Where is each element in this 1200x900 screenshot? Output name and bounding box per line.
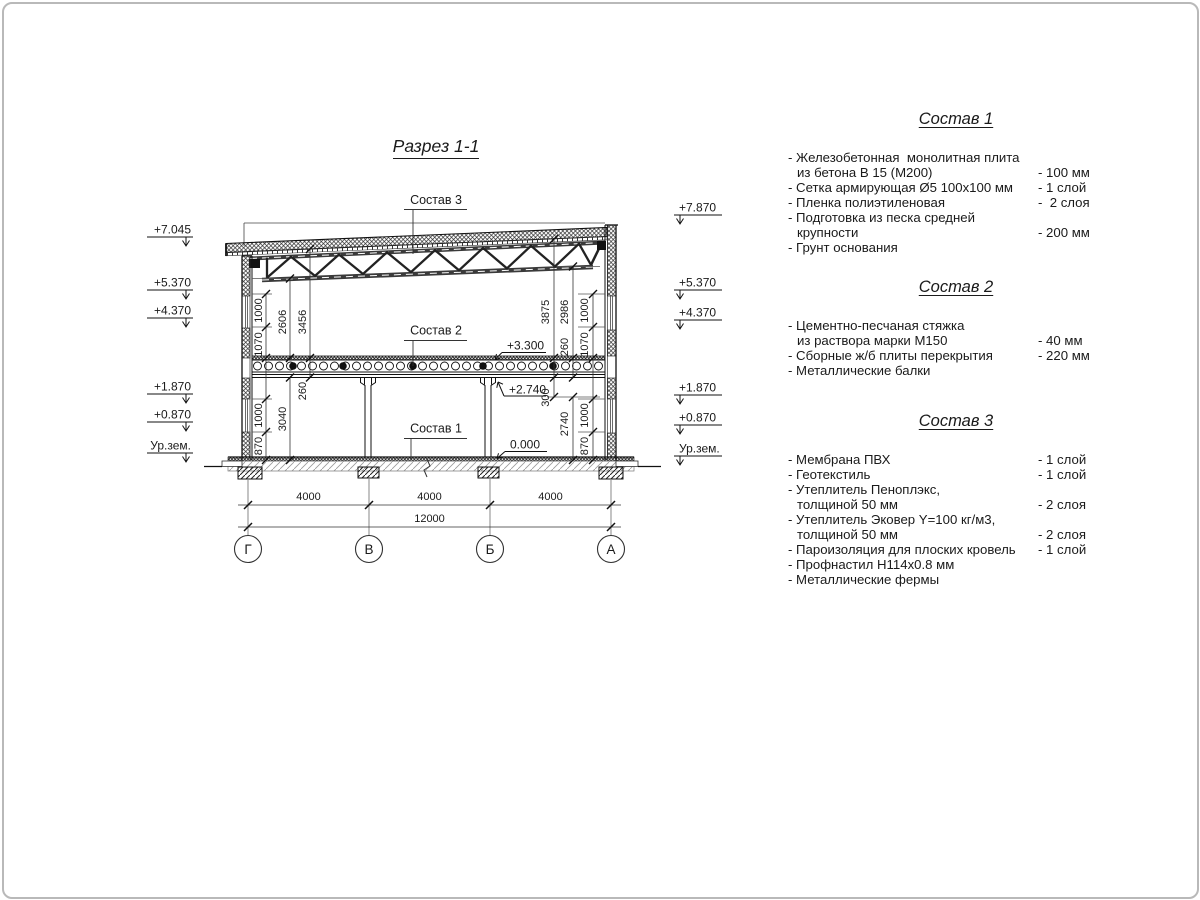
- composition-item: - Пароизоляция для плоских кровель - 1 с…: [788, 542, 1124, 557]
- elevation-mark: +0.870: [674, 411, 722, 435]
- dim-label: 2606: [277, 310, 289, 334]
- axis-bubbles: Г В Б А: [235, 536, 625, 563]
- bottom-dimensions: 4000 4000 4000 12000 Г В Б А: [235, 479, 625, 563]
- elevation-label: +1.870: [154, 380, 191, 394]
- composition-item-text: крупности: [788, 225, 1038, 240]
- elevation-mark: +7.045: [147, 223, 193, 247]
- composition-item-text: - Профнастил Н114х0.8 мм: [788, 557, 1038, 572]
- composition-item: - Пленка полиэтиленовая - 2 слоя: [788, 195, 1124, 210]
- composition-item: толщиной 50 мм - 2 слоя: [788, 497, 1124, 512]
- composition-block-3: Состав 3 - Мембрана ПВХ - 1 слой - Геоте…: [788, 412, 1124, 587]
- composition-item: из раствора марки М150 - 40 мм: [788, 333, 1124, 348]
- left-wall: [242, 256, 252, 461]
- callout-label: Состав 3: [410, 193, 462, 207]
- dim-label: 3456: [297, 310, 309, 334]
- dim-label: 4000: [538, 491, 562, 503]
- wall-masonry: [242, 256, 250, 296]
- elevation-label: +5.370: [154, 276, 191, 290]
- section-title: Разрез 1-1: [393, 136, 480, 156]
- dim-label: 1000: [253, 298, 265, 322]
- elevation-mark: +5.370: [147, 276, 193, 300]
- elevation-label: +5.370: [679, 276, 716, 290]
- composition-item: - Сетка армирующая Ø5 100х100 мм - 1 сло…: [788, 180, 1124, 195]
- elevation-mark: Ур.зем.: [147, 439, 193, 463]
- composition-item-value: - 100 мм: [1038, 165, 1090, 180]
- composition-item: - Подготовка из песка средней: [788, 210, 1124, 225]
- callout-label: Состав 2: [410, 324, 462, 338]
- dim-label: 1000: [579, 298, 591, 322]
- composition-item: - Профнастил Н114х0.8 мм: [788, 557, 1124, 572]
- composition-item-text: - Цементно-песчаная стяжка: [788, 318, 1038, 333]
- dim-label: 3875: [540, 300, 552, 324]
- elevation-marks-left: +7.045 +5.370 +4.370 +1.870 +0.870 Ур.зе…: [147, 223, 193, 463]
- composition-item: толщиной 50 мм - 2 слоя: [788, 527, 1124, 542]
- section-drawing: Разрез 1-1: [0, 0, 780, 620]
- composition-item: крупности - 200 мм: [788, 225, 1124, 240]
- composition-list: - Железобетонная монолитная плита из бет…: [788, 150, 1124, 255]
- composition-item-value: - 220 мм: [1038, 348, 1090, 363]
- column-axis-b: [481, 378, 496, 458]
- composition-item-text: из раствора марки М150: [788, 333, 1038, 348]
- drawing-title: Разрез 1-1: [393, 136, 480, 159]
- composition-item-value: - 1 слой: [1038, 542, 1086, 557]
- composition-item-text: - Подготовка из песка средней: [788, 210, 1038, 225]
- dim-label: 1000: [579, 403, 591, 427]
- level-mark-beam: +2.740: [497, 382, 547, 397]
- callout-sostav1: Состав 1: [404, 422, 467, 461]
- elevation-marks-right: +7.870 +5.370 +4.370 +1.870 +0.870 Ур.зе…: [674, 201, 722, 466]
- axis-label: Г: [244, 542, 252, 557]
- composition-title: Состав 3: [788, 412, 1124, 431]
- composition-item-text: толщиной 50 мм: [788, 497, 1038, 512]
- composition-item-text: - Пленка полиэтиленовая: [788, 195, 1038, 210]
- plinth-right: [616, 461, 638, 467]
- level-label: +2.740: [509, 383, 546, 397]
- elevation-mark: +5.370: [674, 276, 722, 300]
- axis-extension-lines: [248, 479, 611, 536]
- composition-item-value: - 200 мм: [1038, 225, 1090, 240]
- composition-item: - Цементно-песчаная стяжка: [788, 318, 1124, 333]
- elevation-mark: +4.370: [674, 306, 722, 330]
- wall-masonry: [608, 225, 617, 296]
- dim-label: 870: [579, 437, 591, 455]
- composition-item-text: - Пароизоляция для плоских кровель: [788, 542, 1038, 557]
- dim-label: 1070: [253, 332, 265, 356]
- wall-masonry: [242, 378, 250, 399]
- composition-item-text: - Утеплитель Пеноплэкс,: [788, 482, 1038, 497]
- composition-item: - Грунт основания: [788, 240, 1124, 255]
- composition-item-text: - Сетка армирующая Ø5 100х100 мм: [788, 180, 1038, 195]
- composition-item: - Металлические фермы: [788, 572, 1124, 587]
- composition-item: - Мембрана ПВХ - 1 слой: [788, 452, 1124, 467]
- wall-masonry: [608, 330, 617, 356]
- composition-item-value: - 1 слой: [1038, 467, 1086, 482]
- dim-label: 2740: [559, 412, 571, 436]
- sand-bed: [228, 461, 634, 471]
- dim-label: 4000: [296, 491, 320, 503]
- dim-label: 2986: [559, 300, 571, 324]
- composition-item-text: - Металлические фермы: [788, 572, 1038, 587]
- composition-item-text: толщиной 50 мм: [788, 527, 1038, 542]
- elevation-label: +1.870: [679, 381, 716, 395]
- dim-label: 1070: [579, 332, 591, 356]
- composition-item-value: - 2 слоя: [1038, 195, 1090, 210]
- elevation-mark: +0.870: [147, 408, 193, 432]
- elevation-mark: +1.870: [674, 381, 722, 405]
- composition-item-text: - Металлические балки: [788, 363, 1038, 378]
- composition-item-text: - Сборные ж/б плиты перекрытия: [788, 348, 1038, 363]
- composition-item: - Сборные ж/б плиты перекрытия - 220 мм: [788, 348, 1124, 363]
- composition-item-value: - 1 слой: [1038, 180, 1086, 195]
- composition-item-value: - 2 слоя: [1038, 527, 1086, 542]
- composition-block-1: Состав 1 - Железобетонная монолитная пли…: [788, 110, 1124, 255]
- composition-item: - Утеплитель Эковер Y=100 кг/м3,: [788, 512, 1124, 527]
- dim-label: 12000: [414, 513, 445, 525]
- composition-item-text: - Железобетонная монолитная плита: [788, 150, 1038, 165]
- composition-item: - Металлические балки: [788, 363, 1124, 378]
- composition-list: - Мембрана ПВХ - 1 слой - Геотекстиль - …: [788, 452, 1124, 587]
- composition-item-value: - 40 мм: [1038, 333, 1083, 348]
- composition-title: Состав 2: [788, 278, 1124, 297]
- composition-item-text: - Мембрана ПВХ: [788, 452, 1038, 467]
- elevation-label: +4.370: [154, 304, 191, 318]
- elevation-mark: +4.370: [147, 304, 193, 328]
- elevation-mark: +7.870: [674, 201, 722, 225]
- dim-label: 260: [559, 338, 571, 356]
- composition-item: - Геотекстиль - 1 слой: [788, 467, 1124, 482]
- elevation-mark: Ур.зем.: [674, 442, 722, 466]
- elevation-label: +0.870: [679, 411, 716, 425]
- callout-label: Состав 1: [410, 422, 462, 436]
- extension-lines: [252, 267, 605, 433]
- composition-item-text: - Грунт основания: [788, 240, 1038, 255]
- wall-masonry: [242, 432, 250, 457]
- dim-label: 3040: [277, 407, 289, 431]
- composition-item-value: - 2 слоя: [1038, 497, 1086, 512]
- right-wall: [605, 225, 618, 461]
- truss-bearing-left: [249, 259, 260, 268]
- composition-block-2: Состав 2 - Цементно-песчаная стяжка из р…: [788, 278, 1124, 378]
- column-axis-v: [361, 378, 376, 458]
- axis-label: А: [606, 542, 615, 557]
- elevation-label: +7.045: [154, 223, 191, 237]
- dim-label: 4000: [417, 491, 441, 503]
- composition-item-value: - 1 слой: [1038, 452, 1086, 467]
- wall-masonry: [608, 378, 617, 399]
- level-mark-floor: 0.000: [497, 438, 547, 459]
- dim-label: 870: [253, 437, 265, 455]
- composition-item-text: - Геотекстиль: [788, 467, 1038, 482]
- composition-item: - Утеплитель Пеноплэкс,: [788, 482, 1124, 497]
- wall-masonry: [242, 328, 250, 358]
- composition-item-text: - Утеплитель Эковер Y=100 кг/м3,: [788, 512, 1038, 527]
- composition-item: из бетона В 15 (М200) - 100 мм: [788, 165, 1124, 180]
- composition-list: - Цементно-песчаная стяжка из раствора м…: [788, 318, 1124, 378]
- axis-label: В: [364, 542, 373, 557]
- wall-masonry: [608, 433, 617, 457]
- elevation-label: +0.870: [154, 408, 191, 422]
- composition-title: Состав 1: [788, 110, 1124, 129]
- elevation-label: Ур.зем.: [150, 439, 191, 453]
- level-label: 0.000: [510, 438, 540, 452]
- axis-label: Б: [486, 542, 495, 557]
- plinth-left: [222, 461, 242, 467]
- elevation-label: +7.870: [679, 201, 716, 215]
- dim-label: 260: [297, 382, 309, 400]
- composition-callouts: Состав 3 Состав 2 Состав 1: [404, 193, 467, 460]
- dim-label: 1000: [253, 403, 265, 427]
- composition-item: - Железобетонная монолитная плита: [788, 150, 1124, 165]
- elevation-label: +4.370: [679, 306, 716, 320]
- elevation-label: Ур.зем.: [679, 442, 720, 456]
- composition-item-text: из бетона В 15 (М200): [788, 165, 1038, 180]
- level-label: +3.300: [507, 339, 544, 353]
- elevation-mark: +1.870: [147, 380, 193, 404]
